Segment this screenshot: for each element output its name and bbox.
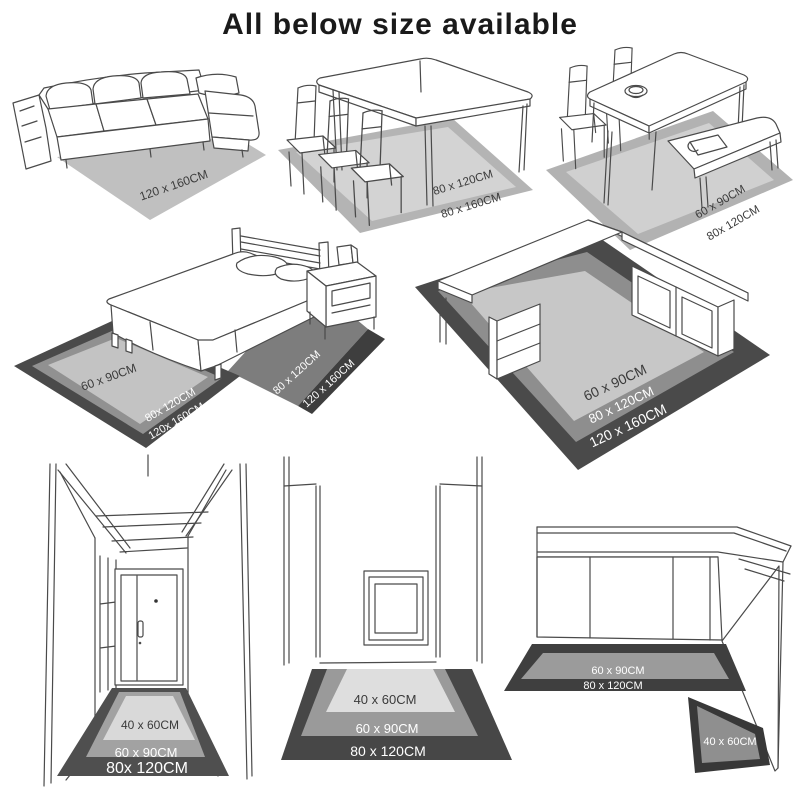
rug-size-label: 80 x 120CM xyxy=(350,743,425,759)
rug-size-label: 80x 120CM xyxy=(106,760,188,777)
scene-sofa-livingroom: 120 x 160CM xyxy=(13,70,266,220)
rug-size-label: 40 x 60CM xyxy=(703,736,756,748)
scene-bedroom: 60 x 90CM 80x 120CM 120x 160CM 80 x 120C… xyxy=(14,228,385,448)
peephole-icon xyxy=(154,599,158,603)
rug-size-infographic: All below size available 120 x 160CM xyxy=(0,0,800,800)
scene-dining-bench: 60 x 90CM 80x 120CM xyxy=(546,47,793,250)
rug-size-label: 60 x 90CM xyxy=(356,721,419,736)
corridor-frame-illustration xyxy=(364,571,428,645)
page-title: All below size available xyxy=(222,8,578,41)
scene-kitchen: 60 x 90CM 80 x 120CM 40 x 60CM xyxy=(504,527,791,773)
scene-corridor: 40 x 60CM 60 x 90CM 80 x 120CM xyxy=(281,457,512,760)
door-illustration xyxy=(115,569,183,685)
scene-desk: 60 x 90CM 80 x 120CM 120 x 160CM xyxy=(415,220,770,470)
rug-size-label: 60 x 90CM xyxy=(591,665,644,677)
scene-dining-table: 80 x 120CM 80 x 160CM xyxy=(278,58,533,233)
rug-size-label: 40 x 60CM xyxy=(354,692,417,707)
scene-hallway: 40 x 60CM 60 x 90CM 80x 120CM xyxy=(44,455,252,786)
rug-size-label: 40 x 60CM xyxy=(121,718,179,732)
rug-size-label: 60 x 90CM xyxy=(115,745,178,760)
door-handle-icon xyxy=(138,621,143,637)
product-size-chart-image: All below size available 120 x 160CM xyxy=(0,0,800,800)
rug-size-label: 80 x 120CM xyxy=(583,680,642,692)
